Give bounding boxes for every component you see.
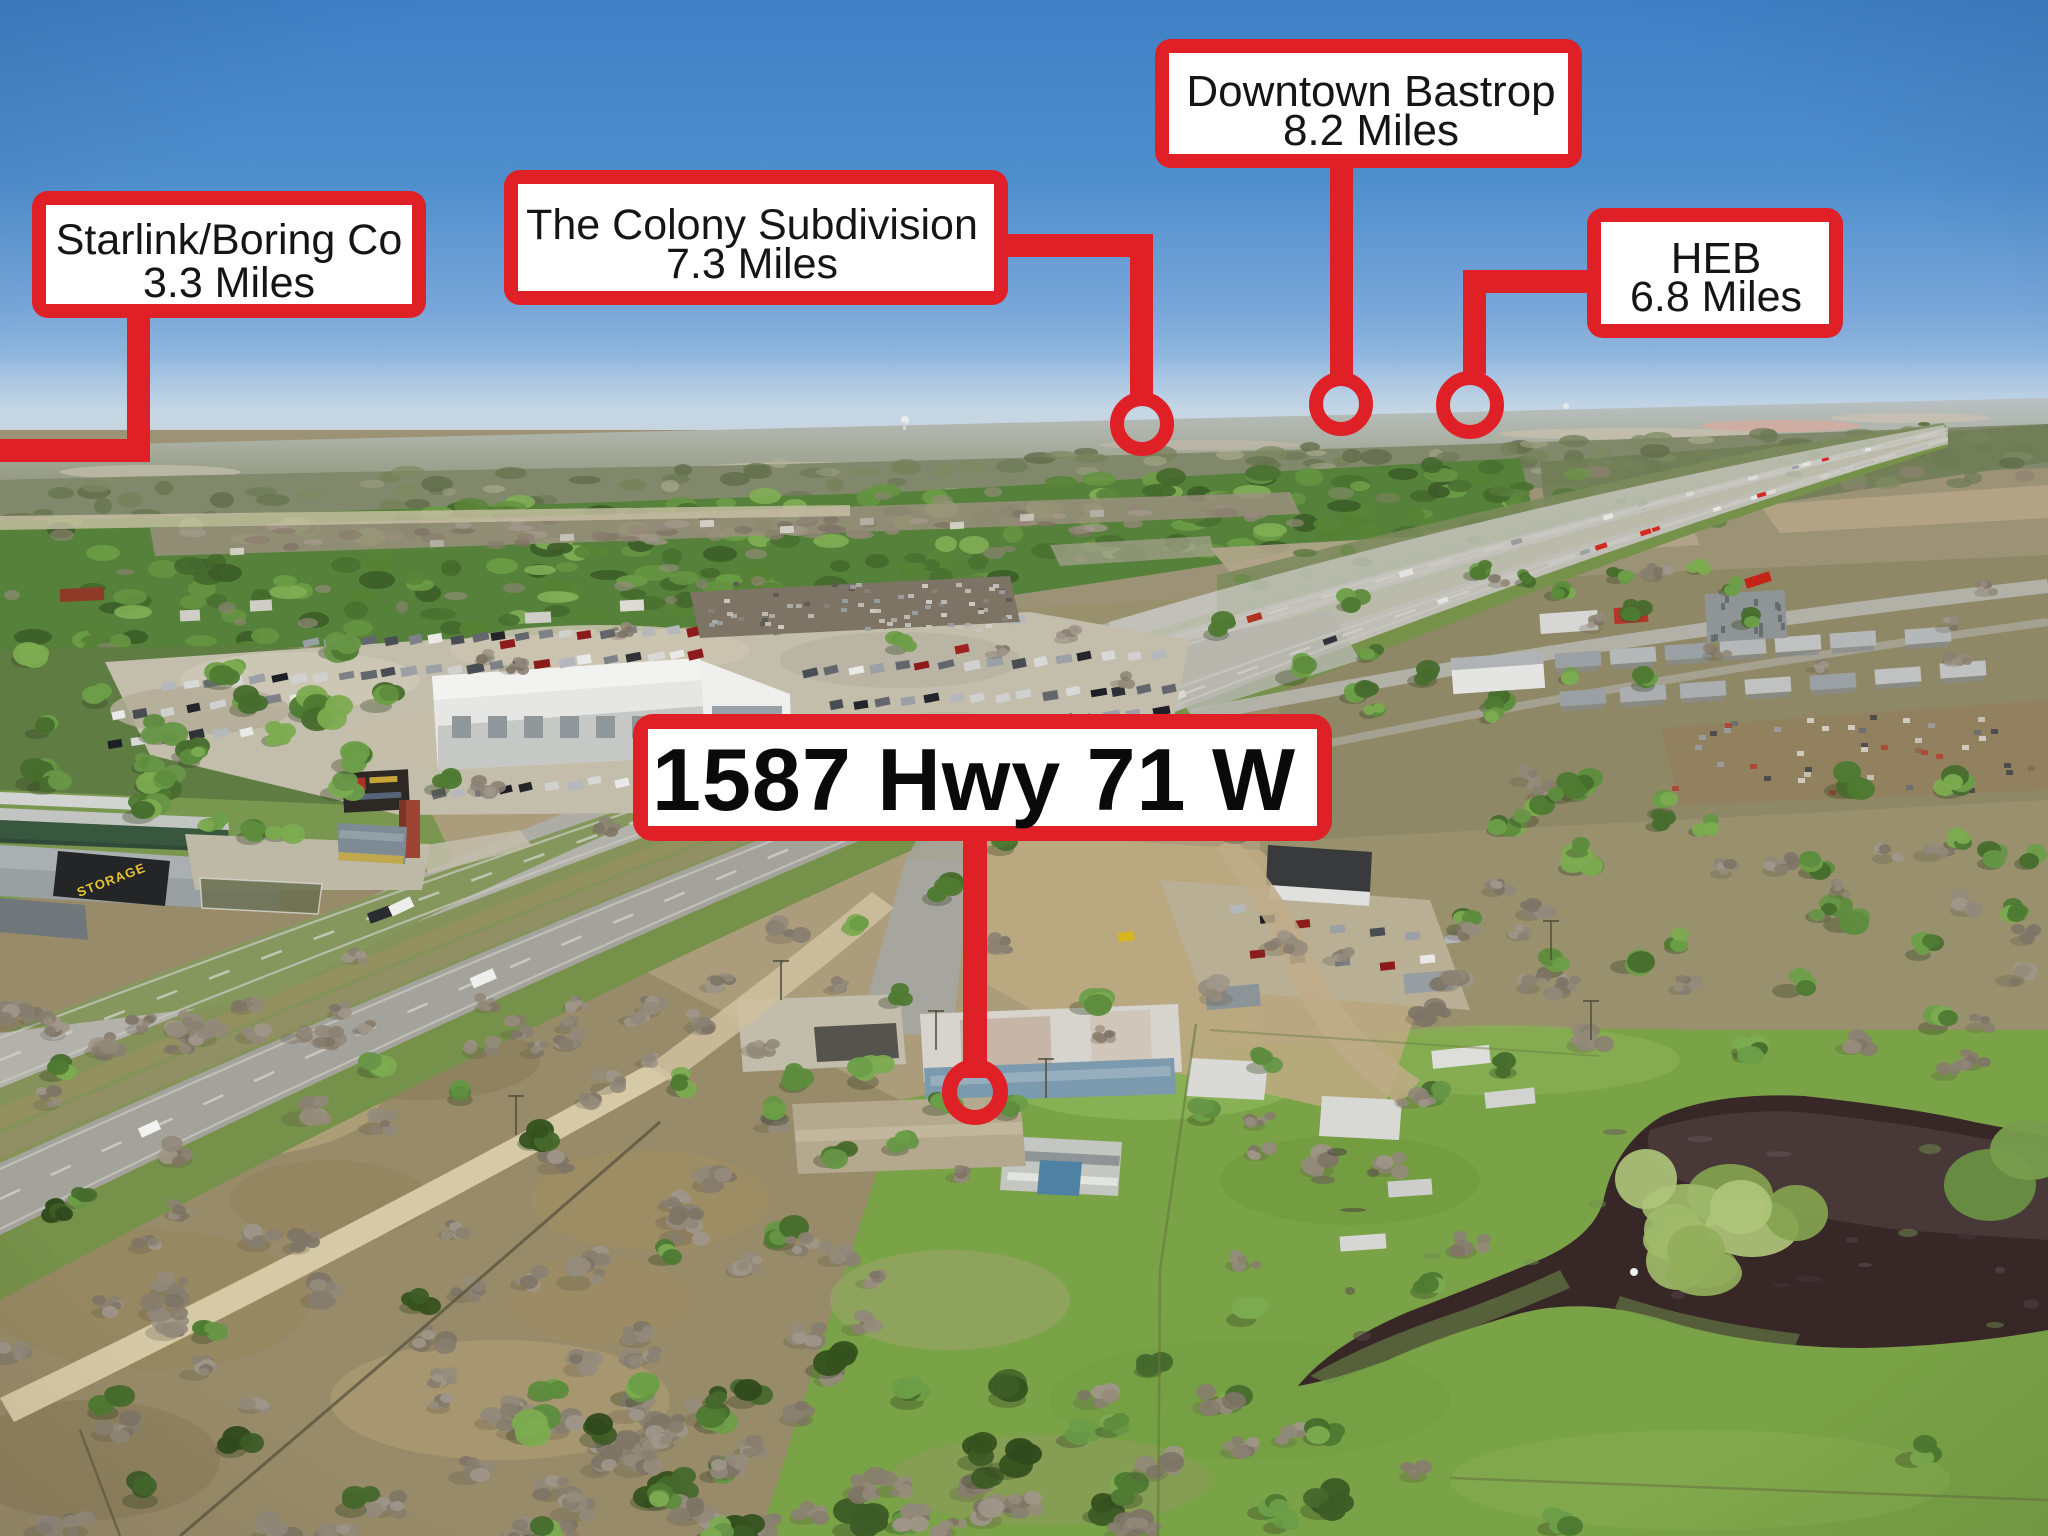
svg-text:1587 Hwy 71 W: 1587 Hwy 71 W bbox=[652, 730, 1296, 829]
svg-text:Starlink/Boring Co: Starlink/Boring Co bbox=[56, 216, 403, 264]
svg-text:8.2 Miles: 8.2 Miles bbox=[1283, 106, 1459, 155]
svg-text:6.8 Miles: 6.8 Miles bbox=[1630, 273, 1802, 321]
svg-text:3.3 Miles: 3.3 Miles bbox=[143, 259, 315, 307]
svg-text:7.3 Miles: 7.3 Miles bbox=[666, 240, 838, 288]
